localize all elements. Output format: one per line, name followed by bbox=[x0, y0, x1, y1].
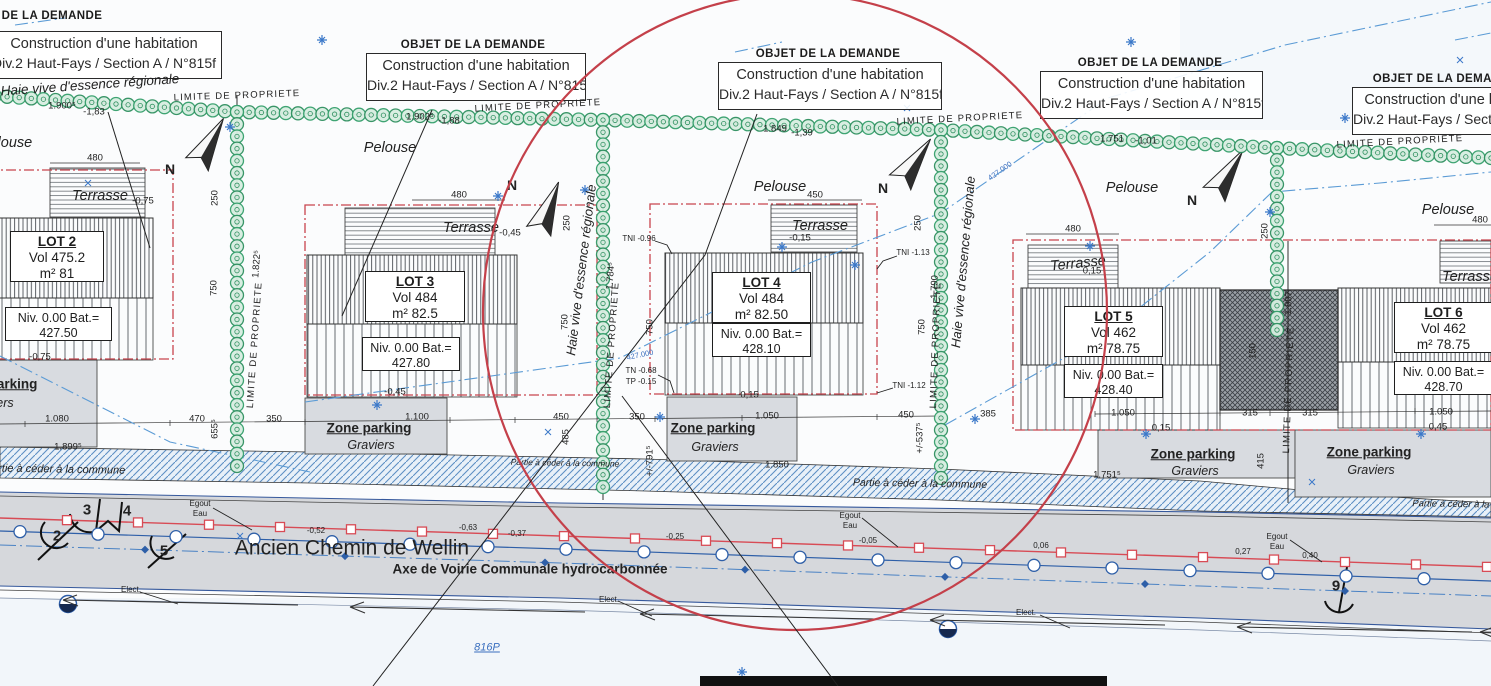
terrain-level-label: TP -0.15 bbox=[626, 378, 657, 386]
dimension-label: 750 bbox=[645, 319, 655, 335]
dimension-label: 655⁵ bbox=[210, 419, 220, 439]
lot-level-box-5: Niv. 0.00 Bat.=428.40 bbox=[1064, 364, 1163, 398]
dimension-label: -1,01 bbox=[1135, 136, 1157, 146]
dimension-label: 1.902⁵ bbox=[406, 112, 434, 122]
dimension-label: -0,45 bbox=[499, 228, 521, 238]
egout-label: Egout bbox=[190, 500, 211, 508]
objet-demande-title-5: OBJET DE LA DEMANDE bbox=[1373, 73, 1491, 85]
elect-label: Elect. bbox=[1016, 609, 1036, 617]
survey-point-number: 3 bbox=[83, 503, 91, 518]
objet-demande-title-3: OBJET DE LA DEMANDE bbox=[756, 48, 901, 60]
objet-demande-box-1: Construction d'une habitationDiv.2 Haut-… bbox=[0, 31, 222, 79]
objet-line1: Construction d'une habitation bbox=[367, 58, 585, 74]
egout-label: Egout bbox=[840, 512, 861, 520]
dimension-label: 315 bbox=[1302, 408, 1318, 418]
survey-point-number: 9 bbox=[1332, 579, 1340, 594]
egout-label: Egout bbox=[1267, 533, 1288, 541]
dimension-label: 385 bbox=[980, 409, 996, 419]
road-level-value: -0,52 bbox=[307, 527, 325, 535]
lot-volume: Vol 462 bbox=[1395, 321, 1491, 336]
dimension-label: 1.751⁵ bbox=[1093, 470, 1121, 480]
lot-label-box-2: LOT 2Vol 475.2m² 81 bbox=[10, 231, 104, 282]
dimension-label: 750 bbox=[917, 319, 927, 335]
elect-label: Elect. bbox=[599, 596, 619, 604]
lot-level-label: Niv. 0.00 Bat.= bbox=[6, 311, 111, 325]
road-name-label: Ancien Chemin de Wellin bbox=[235, 538, 469, 559]
road-axis-label: Axe de Voirie Communale hydrocarbonnée bbox=[392, 562, 667, 576]
dimension-label: 1.807 bbox=[1284, 291, 1294, 315]
north-letter: N bbox=[165, 162, 175, 176]
lot-level-label: Niv. 0.00 Bat.= bbox=[1395, 365, 1491, 379]
road-level-value: -0,25 bbox=[666, 533, 684, 541]
lot-label-box-3: LOT 3Vol 484m² 82.5 bbox=[365, 271, 465, 322]
dimension-label: 450 bbox=[898, 410, 914, 420]
eau-label: Eau bbox=[843, 522, 857, 530]
objet-line2: Div.2 Haut-Fays / Section A / N°815f bbox=[367, 77, 585, 93]
dimension-label: -1,88 bbox=[438, 116, 460, 126]
objet-line2: Div.2 Haut-Fays / Section A / N°815f bbox=[1353, 111, 1491, 127]
survey-point-number: 2 bbox=[53, 529, 61, 544]
objet-demande-title-4: OBJET DE LA DEMANDE bbox=[1078, 57, 1223, 69]
lot-volume: Vol 484 bbox=[366, 290, 464, 305]
pelouse-label: Pelouse bbox=[1422, 203, 1474, 218]
graviers-label: Graviers bbox=[0, 397, 14, 410]
lot-label-box-6: LOT 6Vol 462m² 78.75 bbox=[1394, 302, 1491, 353]
dimension-label: 0,45 bbox=[1429, 422, 1448, 432]
lot-name: LOT 5 bbox=[1065, 309, 1162, 324]
dimension-label: 0,15 bbox=[1152, 423, 1171, 433]
dimension-label: 450 bbox=[807, 190, 823, 200]
objet-demande-title-1: OBJET DE LA DEMANDE bbox=[0, 10, 102, 22]
terrain-level-label: TNI -1.12 bbox=[892, 382, 925, 390]
lot-level-value: 428.70 bbox=[1395, 380, 1491, 394]
graviers-label: Graviers bbox=[347, 439, 394, 452]
lot-surface: m² 78.75 bbox=[1395, 337, 1491, 352]
objet-line2: Div.2 Haut-Fays / Section A / N°815f bbox=[1041, 95, 1262, 111]
eau-label: Eau bbox=[1270, 543, 1284, 551]
road-level-value: -0,37 bbox=[508, 530, 526, 538]
lot-label-box-4: LOT 4Vol 484m² 82.50 bbox=[712, 272, 811, 323]
lot-level-value: 427.80 bbox=[363, 356, 459, 370]
lot-surface: m² 78.75 bbox=[1065, 341, 1162, 356]
objet-demande-title-2: OBJET DE LA DEMANDE bbox=[401, 39, 546, 51]
terrasse-label: Terrasse bbox=[443, 221, 499, 236]
objet-line1: Construction d'une habitation bbox=[0, 36, 221, 52]
graviers-label: Graviers bbox=[1347, 464, 1394, 477]
dimension-label: 1.822⁵ bbox=[251, 250, 262, 278]
dimension-label: -0,75 bbox=[29, 352, 51, 362]
dimension-label: +/-791⁵ bbox=[645, 445, 655, 476]
terrain-level-label: TN -0.68 bbox=[625, 367, 656, 375]
cession-strip-label: Partie à céder à la commune bbox=[511, 458, 620, 468]
dimension-label: 470 bbox=[189, 414, 205, 424]
lot-level-value: 428.10 bbox=[713, 342, 810, 356]
elect-label: Elect. bbox=[121, 586, 141, 594]
lot-surface: m² 81 bbox=[11, 266, 103, 281]
parcel-ref-label: 816P bbox=[474, 643, 500, 654]
site-plan-canvas: OBJET DE LA DEMANDEConstruction d'une ha… bbox=[0, 0, 1491, 686]
objet-demande-box-5: Construction d'une habitationDiv.2 Haut-… bbox=[1352, 87, 1491, 135]
road-level-value: 0,06 bbox=[1033, 542, 1049, 550]
dimension-label: 1.050 bbox=[1111, 408, 1135, 418]
objet-demande-box-2: Construction d'une habitationDiv.2 Haut-… bbox=[366, 53, 586, 101]
dimension-label: 350 bbox=[266, 414, 282, 424]
dimension-label: +/-537⁵ bbox=[915, 422, 925, 453]
zone-parking-label: Zone parking bbox=[327, 421, 412, 435]
objet-line1: Construction d'une habitation bbox=[1041, 76, 1262, 92]
lot-level-label: Niv. 0.00 Bat.= bbox=[363, 341, 459, 355]
cession-strip-label: Partie à céder à la commune bbox=[853, 478, 987, 491]
lot-volume: Vol 462 bbox=[1065, 325, 1162, 340]
north-letter: N bbox=[507, 178, 517, 192]
cession-strip-label: Partie à céder à la commune bbox=[1412, 499, 1491, 511]
graviers-label: Graviers bbox=[691, 441, 738, 454]
pelouse-label: Pelouse bbox=[364, 141, 416, 156]
terrain-level-label: TNI -1.13 bbox=[896, 249, 929, 257]
dimension-label: 1.050 bbox=[755, 411, 779, 421]
dimension-label: 350 bbox=[629, 412, 645, 422]
objet-demande-box-4: Construction d'une habitationDiv.2 Haut-… bbox=[1040, 71, 1263, 119]
road-level-value: -0,05 bbox=[859, 537, 877, 545]
lot-level-label: Niv. 0.00 Bat.= bbox=[1065, 368, 1162, 382]
dimension-label: -0,45 bbox=[384, 387, 406, 397]
terrain-level-label: TNI -0.96 bbox=[622, 235, 655, 243]
lot-name: LOT 3 bbox=[366, 274, 464, 289]
dimension-label: 1.751 bbox=[1100, 134, 1124, 144]
north-letter: N bbox=[1187, 193, 1197, 207]
pelouse-label: Pelouse bbox=[0, 136, 32, 151]
lot-level-box-6: Niv. 0.00 Bat.=428.70 bbox=[1394, 361, 1491, 395]
lot-name: LOT 6 bbox=[1395, 305, 1491, 320]
cession-strip-label: Partie à céder à la commune bbox=[0, 463, 125, 476]
lot-level-value: 428.40 bbox=[1065, 383, 1162, 397]
zone-parking-label: Zone parking bbox=[0, 377, 37, 391]
dimension-label: 480 bbox=[451, 190, 467, 200]
road-level-value: 0,40 bbox=[1302, 552, 1318, 560]
dimension-label: 250 bbox=[1260, 223, 1270, 239]
road-level-value: 0,27 bbox=[1235, 548, 1251, 556]
dimension-label: 480 bbox=[1472, 215, 1488, 225]
dimension-label: -0,15 bbox=[737, 390, 759, 400]
dimension-label: 450 bbox=[553, 412, 569, 422]
dimension-label: 480 bbox=[87, 153, 103, 163]
dimension-label: 1.080 bbox=[45, 414, 69, 424]
zone-parking-label: Zone parking bbox=[1151, 447, 1236, 461]
objet-line2: Div.2 Haut-Fays / Section A / N°815f bbox=[719, 86, 941, 102]
north-letter: N bbox=[878, 181, 888, 195]
dimension-label: 1.850 bbox=[765, 460, 789, 470]
dimension-label: 250 bbox=[562, 215, 572, 231]
dimension-label: 250 bbox=[913, 215, 923, 231]
survey-point-number: 4 bbox=[123, 504, 131, 519]
eau-label: Eau bbox=[193, 510, 207, 518]
lot-surface: m² 82.5 bbox=[366, 306, 464, 321]
lot-name: LOT 2 bbox=[11, 234, 103, 249]
dimension-label: -1,39 bbox=[791, 128, 813, 138]
dimension-label: 415 bbox=[1256, 453, 1266, 469]
lot-surface: m² 82.50 bbox=[713, 307, 810, 322]
lot-volume: Vol 484 bbox=[713, 291, 810, 306]
terrasse-label: Terrasse bbox=[1442, 270, 1491, 285]
survey-point-number: 5 bbox=[160, 544, 168, 559]
dimension-label: 1.050 bbox=[1429, 407, 1453, 417]
lot-label-box-5: LOT 5Vol 462m² 78.75 bbox=[1064, 306, 1163, 357]
dimension-label: 485 bbox=[561, 429, 571, 445]
dimension-label: 150 bbox=[1248, 343, 1258, 359]
objet-line2: Div.2 Haut-Fays / Section A / N°815f bbox=[0, 55, 221, 71]
lot-level-box-3: Niv. 0.00 Bat.=427.80 bbox=[362, 337, 460, 371]
bottom-black-bar bbox=[700, 676, 1107, 686]
terrasse-label: Terrasse bbox=[72, 189, 128, 204]
pelouse-label: Pelouse bbox=[1106, 181, 1158, 196]
dimension-label: -1,83 bbox=[83, 107, 105, 117]
road-level-value: -0,63 bbox=[459, 524, 477, 532]
lot-volume: Vol 475.2 bbox=[11, 250, 103, 265]
dimension-label: -0,75 bbox=[132, 196, 154, 206]
dimension-label: 750 bbox=[209, 280, 219, 296]
objet-line1: Construction d'une habitation bbox=[1353, 92, 1491, 108]
lot-name: LOT 4 bbox=[713, 275, 810, 290]
lot-level-value: 427.50 bbox=[6, 326, 111, 340]
zone-parking-label: Zone parking bbox=[1327, 445, 1412, 459]
lot-level-label: Niv. 0.00 Bat.= bbox=[713, 327, 810, 341]
lot-level-box-4: Niv. 0.00 Bat.=428.10 bbox=[712, 323, 811, 357]
graviers-label: Graviers bbox=[1171, 465, 1218, 478]
dimension-label: -0,15 bbox=[789, 233, 811, 243]
terrasse-label: Terrasse bbox=[792, 219, 848, 234]
zone-parking-label: Zone parking bbox=[671, 421, 756, 435]
lot-level-box-2: Niv. 0.00 Bat.=427.50 bbox=[5, 307, 112, 341]
objet-line1: Construction d'une habitation bbox=[719, 67, 941, 83]
dimension-label: 480 bbox=[1065, 224, 1081, 234]
objet-demande-box-3: Construction d'une habitationDiv.2 Haut-… bbox=[718, 62, 942, 110]
dimension-label: 1.899⁵ bbox=[54, 442, 82, 452]
dimension-label: 1.849 bbox=[763, 124, 787, 134]
dimension-label: 250 bbox=[210, 190, 220, 206]
dimension-label: 315 bbox=[1242, 408, 1258, 418]
pelouse-label: Pelouse bbox=[754, 180, 806, 195]
dimension-label: 1.900⁵ bbox=[48, 101, 76, 111]
